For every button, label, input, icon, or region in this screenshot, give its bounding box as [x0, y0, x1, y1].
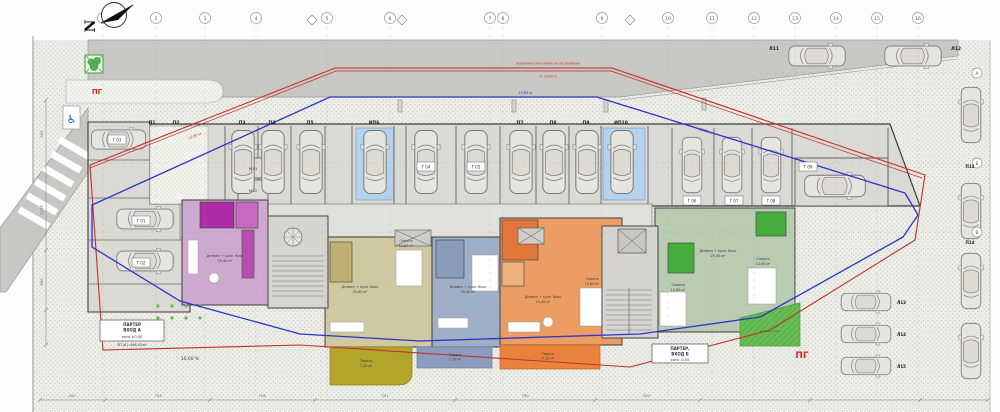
- room-label: Спалня: [585, 277, 598, 281]
- car-icon: [959, 253, 984, 308]
- car-icon: [361, 130, 389, 193]
- site-plan-page: 1 2 3 4 5 6 7 8 9 10 11 12 13 14 15 16 А…: [0, 0, 1000, 412]
- car-icon: [805, 172, 866, 199]
- grid-bubble-label: 2: [155, 16, 158, 22]
- room-area: 25,40 м²: [461, 290, 476, 294]
- grid-bubble-label: 5: [326, 16, 329, 22]
- parking-label: Л14: [897, 332, 906, 337]
- garage-label: Г 08: [767, 199, 776, 204]
- bed: [396, 250, 422, 286]
- parking-label: П1: [149, 120, 156, 126]
- entrance-b-line2: ВХОД Б: [671, 352, 689, 357]
- garage-label: Г 03: [113, 138, 122, 143]
- room-label: Дневен + кухн. бокс: [525, 295, 562, 299]
- car-icon: [841, 323, 891, 345]
- car-icon: [841, 291, 891, 313]
- dim-label: 790: [521, 393, 529, 398]
- parking-label: П3: [239, 120, 246, 126]
- parking-label: П13: [966, 164, 975, 169]
- parking-label: П9: [583, 120, 590, 126]
- room-area: 12,60 м²: [756, 262, 771, 266]
- north-arrow-icon: N: [83, 3, 133, 33]
- entrance-a-line3: кота ±0,00: [122, 335, 144, 339]
- parking-label: П14: [966, 240, 975, 245]
- table: [209, 273, 219, 283]
- grid-bubble-label: А: [975, 71, 978, 77]
- north-letter: N: [83, 19, 99, 32]
- entrance-b-line3: кота -0,05: [670, 358, 689, 362]
- sofa: [438, 318, 468, 328]
- grid-bubble-label: 12: [751, 16, 757, 22]
- section-marker: [397, 15, 407, 25]
- entrance-b-note: ПАРТЕР, ВХОД Б кота -0,05: [652, 344, 708, 363]
- terrace-area: 7,10 м²: [449, 358, 462, 362]
- lawn-label: зелена площ: [760, 329, 781, 333]
- parking-label: П2: [173, 120, 180, 126]
- wc-orange: [502, 262, 524, 286]
- car-icon: [540, 130, 568, 193]
- section-marker: [625, 15, 635, 25]
- grid-bubble-label: Б: [975, 161, 978, 167]
- room-label: Дневен + кухн. бокс: [700, 249, 737, 253]
- wc-purple: [236, 202, 258, 228]
- bathroom-blue: [436, 240, 464, 278]
- car-icon: [885, 43, 941, 68]
- storage-label: М 02: [249, 189, 258, 193]
- restriction-caption: ограничителна линия на застрояване: [516, 62, 580, 66]
- grid-bubble-label: 10: [665, 16, 671, 22]
- car-icon: [789, 43, 845, 68]
- terrace-area: 7,10 м²: [360, 364, 373, 368]
- grid-bubble-label: 8: [502, 16, 505, 22]
- sofa: [330, 322, 364, 332]
- dim-label: 753: [154, 393, 162, 398]
- terrace-label: Тераса: [541, 352, 554, 356]
- garage-label: Г 05: [472, 165, 481, 170]
- room-label: Дневен + кухн. бокс: [450, 285, 487, 289]
- tree-icon: [85, 55, 103, 73]
- room-area: 25,40 м²: [218, 259, 233, 263]
- parking-label: Л11: [769, 46, 779, 52]
- parking-label: ИП10: [614, 120, 628, 126]
- grid-bubble-label: 15: [874, 16, 880, 22]
- garage-label: Г 01: [137, 219, 146, 224]
- room-area: 25,40 м²: [711, 254, 726, 258]
- grid-bubble-label: 14: [833, 16, 839, 22]
- garage-label: Г 02: [137, 261, 146, 266]
- room-label: Спалня: [756, 257, 769, 261]
- room-area: 25,40 м²: [353, 290, 368, 294]
- stair-core-a: [268, 216, 328, 308]
- entrance-a-line4: ЗП (А): 446,03 м²: [117, 343, 147, 347]
- car-icon: [680, 137, 705, 192]
- room-area: 25,40 м²: [536, 300, 551, 304]
- car-icon: [259, 130, 287, 193]
- car-icon: [229, 130, 257, 193]
- parking-label: П4: [269, 120, 276, 126]
- car-icon: [608, 130, 636, 193]
- car-icon: [841, 355, 891, 377]
- parking-label: Л13: [897, 300, 906, 305]
- terrace-area: 7,10 м²: [542, 357, 555, 361]
- dim-label: 400: [68, 393, 76, 398]
- storage-label: М 01: [249, 167, 258, 171]
- slope-label: 10,00 %: [181, 356, 200, 362]
- parking-label: Л15: [897, 364, 906, 369]
- entrance-a-line2: ВХОД А: [123, 328, 141, 333]
- dim-label: 825: [643, 393, 651, 398]
- grid-bubble-label: 3: [204, 16, 207, 22]
- bathroom-green: [668, 243, 694, 273]
- accessible-sign: ♿: [63, 106, 80, 129]
- dim-label: 756: [258, 393, 266, 398]
- car-icon: [297, 130, 325, 193]
- parking-label: П5: [307, 120, 314, 126]
- entrance-b-line1: ПАРТЕР,: [670, 346, 690, 351]
- table: [543, 317, 553, 327]
- dim-label: 1275: [39, 205, 44, 215]
- garage-label: Г 09: [804, 165, 813, 170]
- garage-label: Г 04: [422, 165, 431, 170]
- grid-bubble-label: В: [975, 230, 978, 236]
- parking-label: П8: [550, 120, 557, 126]
- grid-bubble-label: 9: [601, 16, 604, 22]
- garage-label: Г 06: [688, 199, 697, 204]
- grid-bubble-label: 11: [709, 16, 715, 22]
- room-area: 12,60 м²: [671, 288, 686, 292]
- terrace-label: Тераса: [359, 359, 372, 363]
- grid-bubble-label: 6: [389, 16, 392, 22]
- room-label: Дневен + кухн. бокс: [207, 254, 244, 258]
- bed: [748, 268, 776, 304]
- grid-bubble-label: 7: [489, 16, 492, 22]
- garage-ramp-strip: [66, 80, 223, 103]
- dim-label: 500: [39, 130, 44, 138]
- room-label: Дневен + кухн. бокс: [342, 285, 379, 289]
- closet-tan: [330, 242, 352, 282]
- grid-bubble-label: 13: [792, 16, 798, 22]
- car-icon: [959, 323, 984, 378]
- bathroom-green-2: [756, 212, 786, 236]
- car-icon: [720, 137, 745, 192]
- parking-label: П7: [517, 120, 524, 126]
- car-icon: [759, 137, 784, 192]
- wheelchair-icon: ♿: [67, 113, 77, 126]
- dim-label: 690: [39, 278, 44, 286]
- parking-label: ИП6: [369, 120, 380, 126]
- grid-bubble-label: 4: [255, 16, 258, 22]
- offset-blue-label: 13,85 м: [518, 91, 532, 95]
- stair-core-b: [602, 226, 658, 338]
- sofa: [188, 240, 198, 274]
- room-area: 12,60 м²: [585, 282, 600, 286]
- garage-label: Г 07: [730, 199, 739, 204]
- underground-garage-label-left: ПГ: [92, 88, 103, 96]
- underground-garage-label-right: ПГ: [795, 351, 809, 361]
- grid-bubble-label: 16: [915, 16, 921, 22]
- terrace-label: Тераса: [448, 353, 461, 357]
- room-area: 12,60 м²: [399, 244, 414, 248]
- parking-label: Л12: [951, 46, 961, 52]
- dim-label: 791: [381, 393, 389, 398]
- room-label: Спалня: [671, 283, 684, 287]
- car-icon: [959, 87, 984, 142]
- kitchen-purple: [242, 230, 254, 278]
- car-icon: [507, 130, 535, 193]
- site-plan-drawing: 1 2 3 4 5 6 7 8 9 10 11 12 13 14 15 16 А…: [0, 0, 1000, 412]
- car-icon: [573, 130, 601, 193]
- restriction-height: Н: 15,00 м: [539, 75, 557, 79]
- room-label: Спалня: [399, 239, 412, 243]
- entrance-a-line1: ПАРТЕР: [123, 322, 141, 327]
- bed: [660, 292, 686, 326]
- sofa: [508, 322, 540, 332]
- section-marker: [307, 15, 317, 25]
